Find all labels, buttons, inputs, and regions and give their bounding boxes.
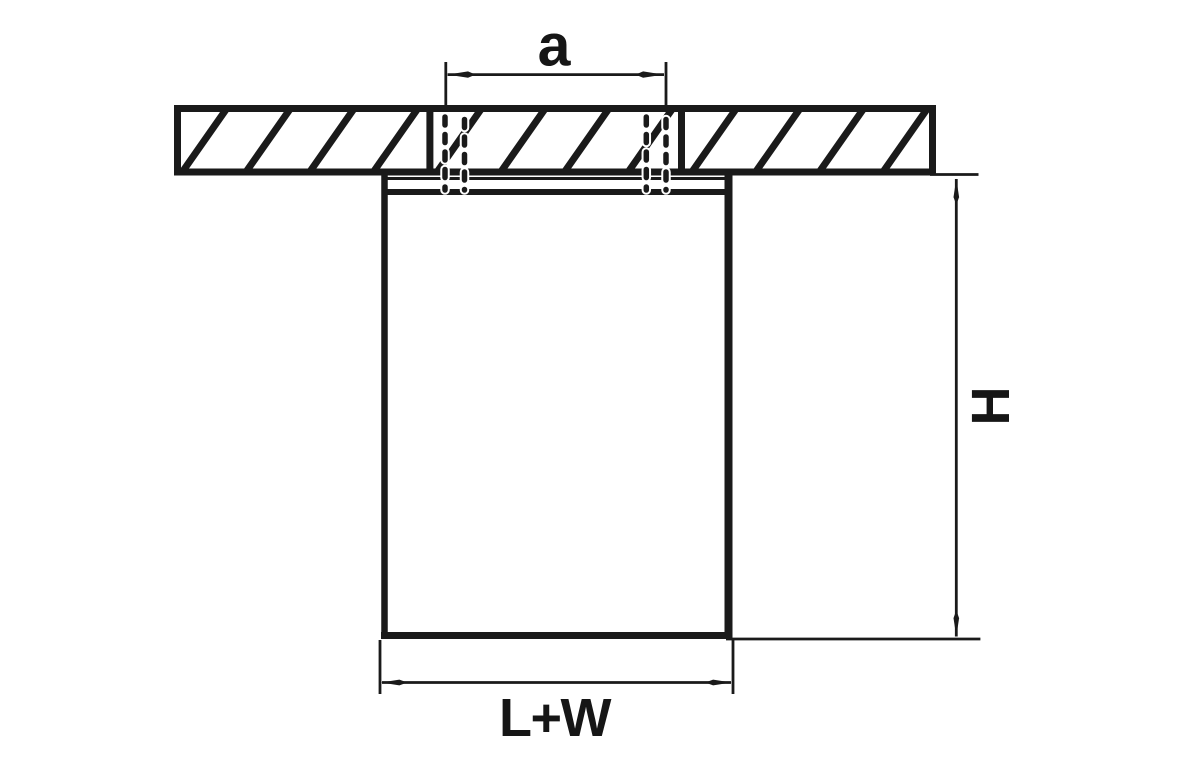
svg-text:L+W: L+W — [499, 688, 612, 748]
svg-text:a: a — [538, 13, 572, 79]
svg-text:H: H — [961, 387, 1021, 426]
